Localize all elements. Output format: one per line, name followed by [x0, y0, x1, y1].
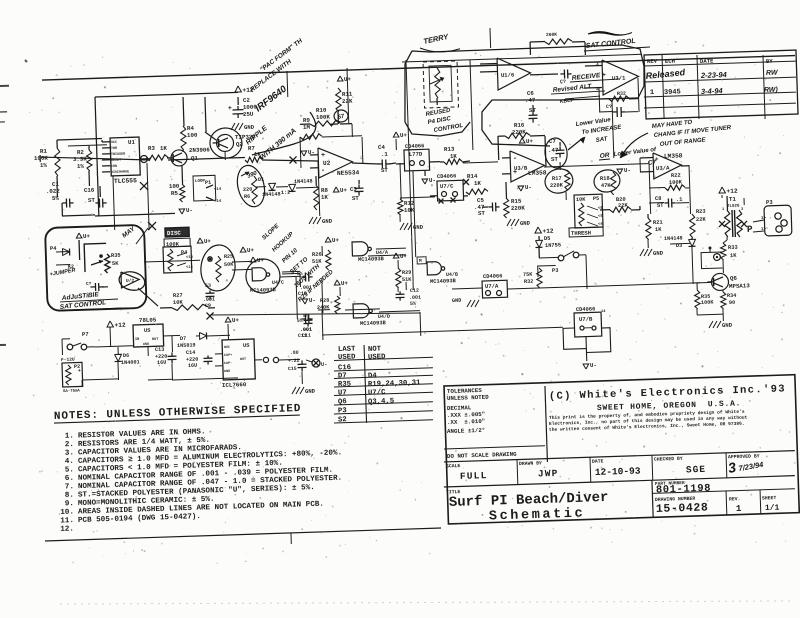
svg-text:.1: .1 — [676, 197, 683, 203]
svg-text:100: 100 — [169, 183, 180, 190]
svg-text:ST: ST — [381, 167, 389, 174]
svg-text:DISCHARGE: DISCHARGE — [111, 170, 129, 175]
svg-text:C?: C? — [560, 79, 566, 85]
svg-text:100K: 100K — [701, 300, 715, 306]
svg-text:U+: U+ — [400, 132, 408, 139]
svg-text:1N5819: 1N5819 — [177, 342, 196, 349]
svg-text:220: 220 — [243, 187, 253, 193]
svg-text:LM358: LM358 — [528, 169, 547, 177]
svg-text:FULL: FULL — [460, 470, 488, 482]
svg-text:U7/A: U7/A — [485, 283, 499, 290]
svg-text:C12: C12 — [410, 288, 419, 294]
svg-text:14: 14 — [601, 310, 606, 314]
svg-text:C7: C7 — [647, 159, 656, 167]
svg-text:MPSA13: MPSA13 — [729, 282, 751, 290]
svg-text:US: US — [144, 328, 151, 334]
svg-text:U/2: U/2 — [126, 278, 135, 284]
svg-text:THRESH: THRESH — [571, 229, 591, 237]
svg-text:U+: U+ — [83, 233, 91, 240]
svg-text:U-: U- — [429, 177, 436, 184]
svg-text:1.: 1. — [65, 432, 74, 440]
svg-text:+12: +12 — [542, 228, 554, 235]
svg-text:GND: GND — [520, 220, 531, 227]
svg-text:4.: 4. — [65, 458, 74, 466]
svg-text:1N4148: 1N4148 — [664, 235, 683, 242]
svg-text:9.: 9. — [65, 500, 74, 508]
svg-text:D6: D6 — [123, 353, 129, 359]
svg-text:-: - — [321, 167, 325, 175]
svg-text:R19,24,30,31: R19,24,30,31 — [368, 379, 421, 389]
svg-text:DATE: DATE — [700, 58, 714, 65]
svg-text:+: + — [78, 368, 81, 374]
svg-text:JWP: JWP — [538, 468, 559, 480]
svg-text:51K: 51K — [402, 277, 412, 283]
svg-text:KBCP: KBCP — [560, 98, 575, 105]
svg-text:UNLESS NOTED: UNLESS NOTED — [447, 394, 489, 402]
svg-text:1: 1 — [722, 208, 725, 212]
svg-text:801-1198: 801-1198 — [656, 483, 712, 497]
svg-text:1%: 1% — [40, 162, 48, 169]
svg-text:100: 100 — [187, 132, 198, 139]
svg-text:53: 53 — [205, 283, 211, 289]
svg-text:3.: 3. — [65, 449, 74, 457]
svg-text:<14: <14 — [186, 255, 194, 260]
svg-text:1K: 1K — [321, 194, 329, 201]
svg-text:USED: USED — [368, 353, 386, 362]
svg-text:6.: 6. — [65, 475, 74, 483]
svg-text:3-4-94: 3-4-94 — [701, 86, 724, 96]
svg-text:75K: 75K — [523, 272, 533, 278]
svg-text:5.: 5. — [65, 466, 74, 474]
svg-text:+.22: +.22 — [288, 358, 300, 364]
svg-text:RESET: RESET — [111, 159, 121, 163]
svg-text:1: 1 — [736, 504, 742, 514]
svg-text:SLOPE: SLOPE — [261, 223, 281, 242]
svg-text:R27: R27 — [173, 293, 183, 299]
svg-text:+: + — [513, 169, 517, 177]
svg-text:90: 90 — [729, 300, 735, 306]
svg-text:.XX ±.010": .XX ±.010" — [447, 418, 485, 426]
svg-text:SCALE: SCALE — [446, 463, 461, 469]
svg-text:OUT: OUT — [152, 338, 159, 342]
svg-text:R13: R13 — [444, 146, 455, 153]
svg-text:DATE: DATE — [592, 458, 604, 464]
svg-text:ANGLE ±1/2°: ANGLE ±1/2° — [447, 427, 485, 435]
svg-text:3945: 3945 — [664, 88, 681, 97]
svg-text:D7: D7 — [180, 336, 186, 342]
svg-text:MC14093B: MC14093B — [360, 320, 387, 327]
svg-text:OSC: OSC — [224, 346, 230, 350]
svg-text:ST: ST — [88, 197, 96, 204]
svg-text:R29: R29 — [402, 270, 412, 276]
svg-text:L77D: L77D — [409, 151, 423, 158]
svg-text:VCC: VCC — [111, 141, 117, 145]
svg-text:220K: 220K — [511, 205, 526, 212]
svg-text:SHEET: SHEET — [762, 495, 777, 501]
svg-text:C10: C10 — [298, 291, 307, 297]
svg-text:2-23-94: 2-23-94 — [700, 70, 728, 80]
svg-text:REV.: REV. — [729, 496, 741, 502]
svg-text:IN: IN — [135, 338, 139, 342]
svg-text:<14: <14 — [186, 265, 194, 270]
svg-text:ST: ST — [478, 210, 486, 217]
svg-text:D5: D5 — [544, 236, 551, 242]
svg-text:R21: R21 — [653, 220, 663, 226]
svg-text:GND: GND — [143, 343, 149, 347]
svg-text:1:2: 1:2 — [281, 190, 291, 196]
svg-text:R5: R5 — [171, 190, 179, 197]
svg-text:8.: 8. — [65, 492, 74, 500]
svg-text:U+: U+ — [247, 247, 255, 254]
svg-text:67: 67 — [337, 114, 345, 121]
svg-text:C11: C11 — [302, 333, 311, 339]
svg-text:7/23/94: 7/23/94 — [738, 460, 765, 473]
svg-text:1K: 1K — [474, 180, 482, 187]
svg-text:22K: 22K — [342, 98, 353, 105]
svg-text:Schematic: Schematic — [489, 506, 586, 524]
svg-text:P3: P3 — [552, 268, 559, 274]
svg-text:NOTES: UNLESS OTHERWISE SPECIF: NOTES: UNLESS OTHERWISE SPECIFIED — [54, 403, 302, 423]
svg-text:10K: 10K — [576, 197, 586, 203]
svg-text:Q6: Q6 — [338, 398, 347, 406]
svg-text:C16: C16 — [338, 364, 351, 372]
svg-text:TRIGGER: TRIGGER — [111, 153, 126, 157]
svg-text:GND: GND — [244, 124, 255, 131]
svg-text:U1: U1 — [128, 139, 136, 146]
svg-text:U+: U+ — [341, 280, 349, 287]
svg-text:U1/6: U1/6 — [501, 72, 515, 79]
svg-text:.1: .1 — [381, 151, 389, 158]
svg-text:U-: U- — [525, 184, 532, 191]
svg-text:RW: RW — [766, 70, 779, 77]
svg-text:F-12U: F-12U — [61, 357, 75, 363]
svg-text:R3: R3 — [148, 145, 156, 152]
svg-text:7.: 7. — [65, 483, 74, 491]
svg-text:1N4148: 1N4148 — [294, 178, 313, 185]
svg-text:R17: R17 — [552, 176, 562, 182]
svg-text:U7/B: U7/B — [579, 316, 593, 323]
svg-text:MAY: MAY — [121, 225, 137, 239]
svg-text:C?: C? — [606, 104, 612, 110]
svg-text:P5: P5 — [593, 196, 599, 202]
svg-text:C14: C14 — [186, 350, 196, 356]
svg-text:R23: R23 — [696, 209, 706, 215]
svg-text:3: 3 — [596, 61, 599, 67]
svg-text:R28: R28 — [320, 298, 330, 304]
svg-text:U-: U- — [624, 167, 631, 174]
svg-text:LM358: LM358 — [664, 152, 683, 160]
svg-text:TL026: TL026 — [727, 205, 740, 209]
svg-text:U+: U+ — [344, 76, 352, 83]
svg-text:+12: +12 — [114, 322, 126, 329]
svg-text:U+: U+ — [332, 237, 340, 244]
svg-text:5%: 5% — [410, 301, 416, 307]
svg-text:MC14093B: MC14093B — [250, 287, 277, 294]
svg-text:T1: T1 — [729, 196, 737, 203]
svg-text:REV: REV — [647, 58, 658, 65]
svg-text:C13: C13 — [155, 347, 165, 353]
svg-text:260K: 260K — [546, 32, 557, 38]
svg-text:+JUMPER: +JUMPER — [49, 268, 76, 278]
svg-text:25U: 25U — [243, 111, 254, 118]
svg-text:R35: R35 — [338, 381, 351, 389]
svg-text:P: P — [747, 224, 753, 235]
svg-text:PIN 10: PIN 10 — [281, 247, 299, 264]
svg-text:OUT OF RANGE: OUT OF RANGE — [660, 137, 707, 148]
svg-text:-: - — [513, 155, 517, 163]
svg-text:1N4148: 1N4148 — [262, 191, 281, 198]
svg-text:GND: GND — [305, 388, 316, 395]
svg-text:M: M — [419, 258, 422, 264]
svg-text:22K: 22K — [696, 217, 707, 223]
svg-text:U+: U+ — [257, 257, 265, 264]
svg-text:3: 3 — [727, 459, 738, 476]
svg-text:R34: R34 — [727, 293, 737, 299]
svg-text:R33: R33 — [728, 245, 738, 251]
svg-text:2N3906: 2N3906 — [189, 146, 211, 154]
svg-text:.8U: .8U — [290, 350, 299, 356]
svg-text:U7/C: U7/C — [440, 183, 454, 190]
svg-text:R18: R18 — [600, 176, 610, 182]
svg-text:S2: S2 — [338, 416, 347, 424]
svg-text:50K: 50K — [224, 262, 234, 268]
svg-text:1K: 1K — [655, 227, 662, 233]
svg-text:11.: 11. — [60, 517, 74, 525]
svg-text:2.: 2. — [65, 441, 74, 449]
svg-text:GND: GND — [653, 250, 664, 257]
svg-text:CAP+: CAP+ — [224, 354, 232, 358]
svg-text:1: 1 — [650, 89, 654, 97]
svg-text:3: 3 — [741, 208, 744, 212]
svg-text:(C) White's Electronics Inc.'9: (C) White's Electronics Inc.'93 — [549, 383, 786, 403]
svg-text:U+: U+ — [526, 138, 534, 145]
svg-text:THR: THR — [111, 147, 118, 151]
svg-text:U-: U- — [590, 362, 597, 369]
svg-text:C8: C8 — [655, 196, 662, 202]
svg-text:U-: U- — [186, 207, 193, 214]
svg-text:<14: <14 — [214, 187, 222, 192]
svg-text:.47: .47 — [525, 97, 536, 104]
svg-text:RW): RW) — [764, 87, 779, 94]
svg-text:5%: 5% — [52, 195, 60, 202]
svg-text:R32: R32 — [524, 279, 534, 285]
svg-text:GND: GND — [224, 370, 230, 374]
svg-text:SGE: SGE — [686, 464, 706, 476]
svg-text:DISC: DISC — [167, 230, 182, 237]
svg-text:U4/D: U4/D — [378, 314, 390, 320]
svg-text:U+: U+ — [400, 253, 408, 260]
svg-text:5K: 5K — [112, 261, 119, 267]
svg-text:U-: U- — [321, 362, 328, 368]
svg-text:<14: <14 — [214, 199, 222, 204]
svg-text:<5: <5 — [598, 214, 604, 219]
svg-text:1N755: 1N755 — [545, 242, 561, 249]
svg-text:U+: U+ — [340, 187, 348, 194]
svg-text:Q1: Q1 — [191, 155, 199, 162]
svg-text:U-: U- — [309, 297, 316, 304]
svg-text:220K: 220K — [550, 183, 564, 189]
svg-text:47K: 47K — [601, 183, 612, 189]
svg-text:Q3,4,5: Q3,4,5 — [368, 398, 395, 407]
svg-text:MC14093B: MC14093B — [358, 256, 385, 263]
svg-text:1N4001: 1N4001 — [121, 359, 140, 366]
svg-text:10K: 10K — [404, 207, 415, 214]
svg-text:P7: P7 — [82, 331, 89, 338]
svg-text:MAY HAVE TO: MAY HAVE TO — [652, 120, 693, 130]
svg-text:NE5534: NE5534 — [337, 169, 360, 177]
svg-text:TLC555: TLC555 — [114, 177, 137, 185]
svg-text:R26: R26 — [312, 252, 322, 258]
svg-text:U7/C: U7/C — [368, 389, 386, 398]
svg-text:1/1: 1/1 — [765, 504, 780, 513]
svg-text:ST: ST — [657, 203, 664, 209]
svg-text:Q6: Q6 — [730, 275, 738, 282]
svg-text:U4/C: U4/C — [272, 280, 284, 286]
svg-text:GND: GND — [413, 224, 424, 231]
svg-text:D4: D4 — [368, 372, 378, 380]
svg-text:GND: GND — [452, 298, 462, 304]
svg-text:US: US — [243, 343, 250, 349]
svg-text:SAT: SAT — [595, 136, 609, 144]
svg-text:D7: D7 — [338, 372, 347, 380]
svg-text:D1: D1 — [258, 177, 264, 183]
svg-text:CAP-: CAP- — [224, 362, 232, 366]
svg-text:ECH: ECH — [665, 58, 675, 65]
svg-text:U3/A: U3/A — [656, 165, 670, 172]
svg-text:R25: R25 — [224, 254, 234, 260]
svg-text:U4/B: U4/B — [446, 272, 458, 278]
svg-text:Lower Value of: Lower Value of — [613, 147, 657, 158]
svg-text:MC14093B: MC14093B — [430, 278, 457, 285]
svg-text:+: + — [228, 105, 232, 112]
svg-text:1K: 1K — [160, 145, 168, 152]
svg-text:CHECKED BY: CHECKED BY — [654, 456, 683, 463]
svg-text:+: + — [321, 152, 325, 160]
svg-text:R35: R35 — [111, 253, 121, 259]
svg-text:USED: USED — [338, 353, 356, 362]
svg-text:GND: GND — [322, 218, 333, 225]
svg-text:1M: 1M — [303, 124, 311, 131]
svg-text:SA-75mA: SA-75mA — [63, 389, 81, 394]
svg-text:C15: C15 — [288, 366, 297, 372]
svg-text:CD4066: CD4066 — [437, 173, 457, 180]
svg-text:16U: 16U — [188, 363, 198, 369]
svg-text:P1: P1 — [205, 180, 211, 186]
svg-text:BY: BY — [766, 58, 774, 65]
svg-text:U+: U+ — [232, 317, 240, 324]
svg-text:P4: P4 — [50, 246, 57, 252]
svg-text:Q2: Q2 — [236, 141, 244, 148]
svg-text:GND: GND — [722, 322, 733, 329]
svg-text:P3: P3 — [766, 199, 774, 206]
svg-text:12.: 12. — [60, 525, 74, 533]
svg-text:U+: U+ — [204, 238, 212, 245]
svg-text:ST: ST — [352, 195, 360, 202]
svg-text:CD4066: CD4066 — [483, 273, 503, 280]
svg-text:TERRY: TERRY — [423, 32, 451, 46]
svg-text:C16: C16 — [84, 187, 95, 194]
svg-text:C?: C? — [86, 281, 92, 287]
svg-text:51K: 51K — [312, 259, 323, 265]
svg-text:R22: R22 — [671, 173, 681, 179]
svg-text:78L05: 78L05 — [139, 316, 157, 324]
svg-text:U7: U7 — [338, 389, 347, 397]
svg-text:DO NOT SCALE DRAWING: DO NOT SCALE DRAWING — [447, 451, 517, 460]
svg-text:10.: 10. — [60, 509, 74, 517]
svg-text:CON: CON — [111, 165, 117, 169]
svg-text:1%: 1% — [77, 163, 85, 170]
svg-text:<4: <4 — [598, 222, 604, 227]
svg-text:15-0428: 15-0428 — [656, 501, 709, 516]
svg-text:U3/1: U3/1 — [612, 75, 626, 82]
svg-text:ST: ST — [551, 156, 559, 163]
svg-text:16U: 16U — [157, 360, 167, 366]
svg-text:+12: +12 — [726, 188, 738, 195]
svg-text:P3: P3 — [338, 407, 348, 415]
